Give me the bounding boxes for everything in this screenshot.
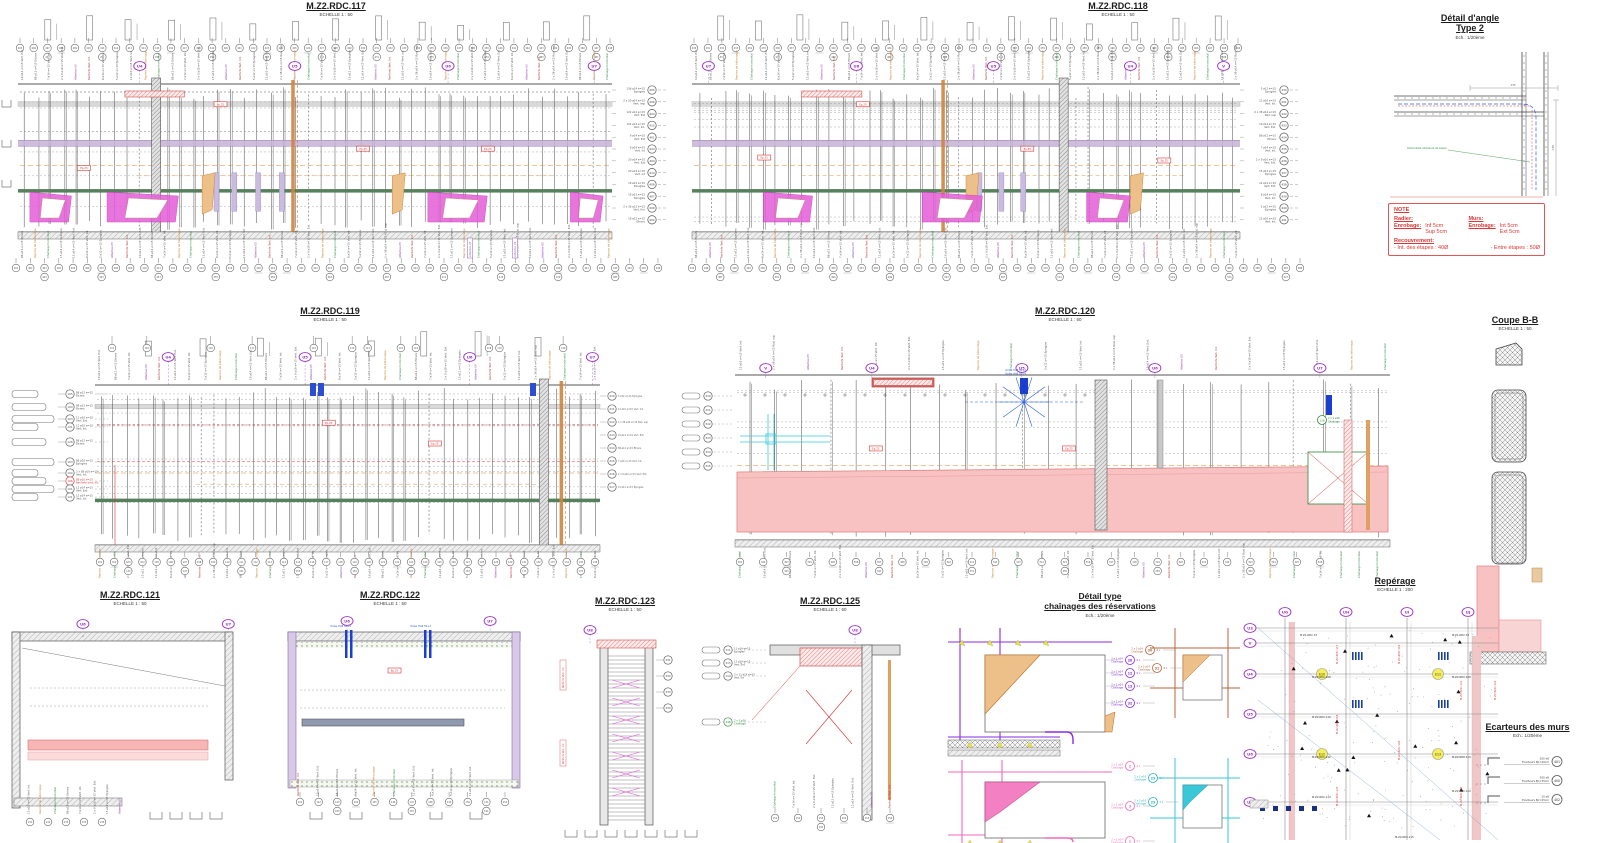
- svg-text:511: 511: [1057, 276, 1062, 279]
- svg-text:2 x 9 ø10 e=15 Vert. Ext.: 2 x 9 ø10 e=15 Vert. Ext.: [306, 224, 310, 258]
- svg-text:120: 120: [367, 561, 372, 564]
- svg-text:428: 428: [399, 267, 404, 270]
- svg-text:Reprise de bétonnage: Reprise de bétonnage: [38, 784, 42, 814]
- svg-text:105: 105: [67, 392, 73, 396]
- svg-text:U6: U6: [854, 63, 860, 68]
- svg-text:215: 215: [609, 459, 615, 463]
- svg-text:445: 445: [642, 267, 647, 270]
- svg-text:Vert. Int.: Vert. Int.: [634, 125, 645, 129]
- svg-text:U4: U4: [1247, 671, 1253, 676]
- svg-text:Chaînage horizontal: Chaînage horizontal: [46, 231, 50, 258]
- svg-text:7 ø14 e=15 Vert. Int.: 7 ø14 e=15 Vert. Int.: [127, 352, 131, 380]
- svg-text:411: 411: [100, 47, 105, 50]
- svg-text:x: x: [82, 634, 84, 638]
- svg-text:121: 121: [67, 425, 73, 429]
- svg-text:2 x 9 ø10 e=15 Vert. Ext.: 2 x 9 ø10 e=15 Vert. Ext.: [567, 224, 571, 258]
- svg-text:12 ø10 e=15 Vert. Int.: 12 ø10 e=15 Vert. Int.: [1050, 228, 1054, 258]
- svg-text:438: 438: [542, 267, 547, 270]
- svg-text:Vert. Int.: Vert. Int.: [76, 473, 87, 477]
- svg-text:U7: U7: [590, 354, 596, 359]
- svg-text:Attentes U5: Attentes U5: [972, 64, 976, 80]
- svg-text:U6: U6: [344, 618, 350, 623]
- svg-text:12 ø10 e=15 Vert. Int.: 12 ø10 e=15 Vert. Int.: [739, 340, 743, 370]
- svg-text:Chaînage horizontal: Chaînage horizontal: [1357, 551, 1361, 578]
- svg-text:191: 191: [484, 810, 489, 813]
- svg-text:401: 401: [14, 267, 19, 270]
- svg-text:107: 107: [183, 561, 188, 564]
- svg-text:28: 28: [1128, 658, 1133, 662]
- svg-text:8 ø14 e=15 Vert. Int.: 8 ø14 e=15 Vert. Int.: [346, 230, 350, 258]
- svg-text:10 ø14 e=15 Vert. Ext.: 10 ø14 e=15 Vert. Ext.: [528, 227, 532, 258]
- svg-text:Renforts Vert. Int.: Renforts Vert. Int.: [888, 784, 892, 808]
- svg-text:455: 455: [1041, 47, 1046, 50]
- svg-text:32: 32: [1128, 701, 1132, 705]
- svg-text:432: 432: [388, 47, 393, 50]
- svg-text:Vert. Ext.: Vert. Ext.: [76, 419, 88, 423]
- svg-text:2 x 9 ø10 e=15 Vert. Ext.: 2 x 9 ø10 e=15 Vert. Ext.: [593, 346, 597, 380]
- scale-reperage: ECHELLE 1 : 200: [1345, 587, 1445, 592]
- svg-text:106: 106: [67, 479, 73, 483]
- svg-text:Renforts Vert. Int.: Renforts Vert. Int.: [562, 667, 565, 688]
- svg-text:104: 104: [67, 405, 73, 409]
- svg-text:487: 487: [1284, 267, 1289, 270]
- svg-text:414: 414: [141, 47, 146, 50]
- svg-text:404: 404: [649, 112, 655, 116]
- svg-text:Renforts Vert. Int.: Renforts Vert. Int.: [388, 56, 392, 80]
- svg-text:142: 142: [316, 801, 321, 804]
- svg-text:426: 426: [370, 267, 375, 270]
- svg-text:432: 432: [456, 267, 461, 270]
- svg-text:Chaînage horizontal: Chaînage horizontal: [188, 231, 192, 258]
- svg-text:471: 471: [375, 56, 380, 59]
- svg-text:430: 430: [1281, 88, 1287, 92]
- svg-text:Ep.25: Ep.25: [391, 669, 399, 673]
- svg-text:452: 452: [789, 267, 794, 270]
- svg-text:305: 305: [831, 561, 836, 564]
- svg-text:x: x: [228, 634, 230, 638]
- svg-text:418: 418: [256, 267, 261, 270]
- svg-text:151: 151: [773, 817, 778, 820]
- svg-text:Attentes U5: Attentes U5: [1142, 242, 1146, 258]
- svg-text:407: 407: [99, 267, 104, 270]
- svg-text:448: 448: [732, 267, 737, 270]
- svg-text:Epingles: Epingles: [634, 184, 646, 188]
- svg-text:15 ø12 e=15 Epingles: 15 ø12 e=15 Epingles: [831, 778, 835, 808]
- svg-text:12 ø10 e=15 Vert. Int.: 12 ø10 e=15 Vert. Int.: [26, 784, 30, 814]
- svg-text:7 ø14 e=15 Vert. Int.: 7 ø14 e=15 Vert. Int.: [423, 230, 427, 258]
- svg-text:Reprise de bétonnage: Reprise de bétonnage: [547, 350, 551, 380]
- svg-text:Horizontale intérieure de liai: Horizontale intérieure de liaison: [1407, 146, 1447, 150]
- svg-text:U7: U7: [487, 618, 493, 623]
- svg-text:Epingles: Epingles: [634, 196, 646, 200]
- svg-text:88 ø12 e=15 Etriers: 88 ø12 e=15 Etriers: [264, 352, 268, 380]
- svg-text:7 ø14 e=15 Vert. Int.: 7 ø14 e=15 Vert. Int.: [319, 52, 323, 80]
- svg-text:441: 441: [584, 267, 589, 270]
- svg-text:7 ø14 e=15 Vert. Int.: 7 ø14 e=15 Vert. Int.: [722, 52, 726, 80]
- svg-text:2 x 9 ø10 e=15 Vert. Ext.: 2 x 9 ø10 e=15 Vert. Ext.: [875, 46, 879, 80]
- svg-text:479: 479: [556, 276, 561, 279]
- svg-text:12 ø14 e=15 Vert. Ext.: 12 ø14 e=15 Vert. Ext.: [412, 765, 416, 796]
- svg-text:UG: UG: [1282, 609, 1288, 614]
- svg-text:M.Z2.RDC.119: M.Z2.RDC.119: [1397, 644, 1401, 664]
- svg-text:2 x 9 ø10 e=15 Vert. Ext.: 2 x 9 ø10 e=15 Vert. Ext.: [1247, 336, 1251, 370]
- svg-text:U8: U8: [852, 627, 858, 632]
- svg-text:U6: U6: [1152, 365, 1158, 370]
- svg-text:5 ø12 e=15 Epingles: 5 ø12 e=15 Epingles: [618, 395, 643, 398]
- note-murs-values: Int 5cm Ext 5cm: [1500, 223, 1520, 235]
- svg-text:473: 473: [1086, 267, 1091, 270]
- svg-text:12 ø10 e=15 Vert. Int.: 12 ø10 e=15 Vert. Int.: [942, 50, 946, 80]
- svg-text:Vert. Int.: Vert. Int.: [1265, 101, 1276, 105]
- svg-text:15 ø12 e=15 Epingles: 15 ø12 e=15 Epingles: [449, 228, 453, 258]
- svg-text:442: 442: [525, 47, 530, 50]
- svg-text:440: 440: [1281, 206, 1287, 210]
- svg-text:436: 436: [513, 267, 518, 270]
- svg-text:5 ø12 e=15 Epingles: 5 ø12 e=15 Epingles: [1169, 229, 1173, 258]
- svg-text:Ecarteurs Ep=25cm: Ecarteurs Ep=25cm: [1522, 798, 1549, 802]
- svg-text:Reprise de bétonnage: Reprise de bétonnage: [606, 228, 610, 258]
- svg-text:446: 446: [656, 267, 661, 270]
- svg-text:9 x: 9 x: [1137, 684, 1141, 688]
- svg-text:451: 451: [775, 267, 780, 270]
- svg-text:Etriers: Etriers: [76, 442, 85, 446]
- svg-text:7 ø14 e=15 Vert. Int.: 7 ø14 e=15 Vert. Int.: [429, 352, 433, 380]
- svg-text:Renforts Vert. Int.: Renforts Vert. Int.: [864, 234, 868, 258]
- svg-text:V: V: [764, 365, 767, 370]
- svg-text:5 ø12 e=15 Epingles: 5 ø12 e=15 Epingles: [906, 229, 910, 258]
- svg-text:U5: U5: [991, 63, 997, 68]
- svg-text:Ep.25: Ep.25: [431, 442, 439, 446]
- svg-text:2 x 9 ø10 e=15 Vert. Ext.: 2 x 9 ø10 e=15 Vert. Ext.: [470, 46, 474, 80]
- title-120: M.Z2.RDC.120: [990, 306, 1140, 316]
- svg-text:433: 433: [1281, 124, 1287, 128]
- svg-text:214: 214: [609, 446, 615, 450]
- svg-text:118: 118: [338, 561, 343, 564]
- svg-text:131: 131: [522, 561, 527, 564]
- svg-text:8 ø14 e=15 Vert. Int.: 8 ø14 e=15 Vert. Int.: [760, 230, 764, 258]
- svg-text:404: 404: [57, 267, 62, 270]
- svg-text:Reprise de bétonnage: Reprise de bétonnage: [735, 50, 739, 80]
- svg-text:126: 126: [451, 561, 456, 564]
- title-123: M.Z2.RDC.123: [550, 596, 700, 606]
- svg-text:2 x 9 ø10 e=15 Vert. Ext.: 2 x 9 ø10 e=15 Vert. Ext.: [1152, 46, 1156, 80]
- svg-text:M.Z2.RDC.121: M.Z2.RDC.121: [1459, 680, 1463, 700]
- svg-text:Voiles HA8 50+4: Voiles HA8 50+4: [330, 624, 351, 628]
- svg-text:Attentes U5: Attentes U5: [254, 242, 258, 258]
- svg-text:12 ø14 e=15 Vert. Ext.: 12 ø14 e=15 Vert. Ext.: [173, 349, 177, 380]
- chainages-scale: Ech.: 1/20ème: [1000, 613, 1200, 618]
- svg-text:Chaînage horizontal: Chaînage horizontal: [53, 787, 57, 814]
- note-radier-col: Radier: Enrobage: Inf 5cm Sup 5cm: [1394, 216, 1466, 235]
- svg-text:333: 333: [665, 690, 671, 694]
- svg-text:12 ø10 e=15 Vert. Int.: 12 ø10 e=15 Vert. Int.: [242, 228, 246, 258]
- svg-text:216: 216: [609, 472, 615, 476]
- svg-text:Attentes U5: Attentes U5: [869, 792, 873, 808]
- svg-text:454: 454: [817, 267, 822, 270]
- scale-119: ECHELLE 1 : 50: [255, 317, 405, 322]
- svg-text:88 ø12 e=15 Etriers: 88 ø12 e=15 Etriers: [33, 52, 37, 80]
- svg-text:118: 118: [487, 347, 492, 350]
- svg-text:Vert. Ext.: Vert. Ext.: [1264, 160, 1276, 164]
- svg-text:437: 437: [789, 47, 794, 50]
- svg-text:105: 105: [154, 561, 159, 564]
- svg-text:5 ø12 e=15 Epingles: 5 ø12 e=15 Epingles: [115, 51, 119, 80]
- svg-text:2 x 2 ø16: 2 x 2 ø16: [1328, 416, 1340, 420]
- svg-text:414: 414: [649, 171, 655, 175]
- svg-text:9 x: 9 x: [1137, 839, 1141, 843]
- svg-text:Vert. Ext.: Vert. Ext.: [1264, 125, 1276, 129]
- svg-text:U3: U3: [1247, 625, 1253, 630]
- svg-text:322: 322: [1225, 561, 1230, 564]
- svg-text:144: 144: [354, 801, 359, 804]
- svg-text:479: 479: [1171, 267, 1176, 270]
- svg-text:7 ø14 e=15 Vert. Int.: 7 ø14 e=15 Vert. Int.: [46, 52, 50, 80]
- svg-text:Reprise de bétonnage: Reprise de bétonnage: [1208, 228, 1212, 258]
- scale-123: ECHELLE 1 : 50: [550, 607, 700, 612]
- svg-text:436: 436: [1281, 159, 1287, 163]
- svg-text:441: 441: [1281, 218, 1287, 222]
- svg-text:416: 416: [169, 47, 174, 50]
- svg-text:5 ø12 e=15 Epingles: 5 ø12 e=15 Epingles: [98, 229, 102, 258]
- svg-text:Renforts Vert. Int.: Renforts Vert. Int.: [840, 346, 844, 370]
- svg-text:311: 311: [725, 648, 731, 652]
- svg-text:Attentes U5: Attentes U5: [398, 242, 402, 258]
- svg-text:155: 155: [865, 817, 870, 820]
- svg-text:M.Z2.RDC.123: M.Z2.RDC.123: [1335, 786, 1339, 806]
- svg-text:10 ø14 e=15 Vert. Ext.: 10 ø14 e=15 Vert. Ext.: [1110, 49, 1114, 80]
- svg-text:123: 123: [409, 561, 414, 564]
- svg-text:431: 431: [442, 267, 447, 270]
- svg-text:Reprise de bétonnage: Reprise de bétonnage: [1063, 228, 1067, 258]
- svg-text:309: 309: [923, 561, 928, 564]
- svg-text:5 ø12 e=15 Epingles: 5 ø12 e=15 Epingles: [940, 549, 944, 578]
- svg-text:Attentes U5: Attentes U5: [525, 64, 529, 80]
- svg-text:M.Z2.RDC.114: M.Z2.RDC.114: [1312, 795, 1331, 799]
- svg-text:467: 467: [385, 276, 390, 279]
- svg-text:311: 311: [970, 561, 975, 564]
- svg-text:U4: U4: [1128, 63, 1134, 68]
- svg-text:5 ø12 e=15 Epingles: 5 ø12 e=15 Epingles: [791, 51, 795, 80]
- note-radier-values: Inf 5cm Sup 5cm: [1425, 223, 1447, 235]
- svg-text:9 x: 9 x: [1137, 764, 1141, 768]
- svg-text:Vert. Hor: Vert. Hor: [633, 208, 645, 212]
- svg-text:8 ø14 e=15 Vert. Int.: 8 ø14 e=15 Vert. Int.: [777, 52, 781, 80]
- svg-text:116: 116: [145, 347, 150, 350]
- svg-text:462: 462: [930, 267, 935, 270]
- svg-text:112: 112: [312, 347, 317, 350]
- svg-text:2 x 9 ø10 e=15 Vert. Ext.: 2 x 9 ø10 e=15 Vert. Ext.: [907, 336, 911, 370]
- svg-text:15 ø12 e=15 Epingles: 15 ø12 e=15 Epingles: [1282, 340, 1286, 370]
- svg-text:Ep.25: Ep.25: [80, 166, 88, 170]
- svg-text:115: 115: [350, 347, 355, 350]
- svg-text:311: 311: [705, 408, 711, 412]
- svg-text:Attentes U5: Attentes U5: [806, 354, 810, 370]
- svg-text:10 ø14 e=15 Vert. Ext.: 10 ø14 e=15 Vert. Ext.: [20, 49, 24, 80]
- svg-text:2 x 9 ø10 e=15 Vert. Ext.: 2 x 9 ø10 e=15 Vert. Ext.: [437, 224, 441, 258]
- svg-text:Etriers: Etriers: [637, 219, 646, 223]
- svg-text:476: 476: [1128, 267, 1133, 270]
- svg-text:460: 460: [902, 267, 907, 270]
- svg-text:Chaînage: Chaînage: [1134, 778, 1146, 782]
- svg-text:482: 482: [1213, 267, 1218, 270]
- svg-text:Vert. Int.: Vert. Int.: [1265, 219, 1276, 223]
- title-coupe: Coupe B-B: [1455, 315, 1575, 325]
- svg-text:103: 103: [126, 561, 131, 564]
- svg-text:134: 134: [565, 561, 570, 564]
- svg-text:477: 477: [1142, 267, 1147, 270]
- svg-text:217: 217: [609, 485, 615, 489]
- svg-text:454: 454: [1027, 47, 1032, 50]
- svg-text:Ep.25: Ep.25: [1065, 447, 1073, 451]
- svg-text:Renforts Vert. Int.: Renforts Vert. Int.: [1137, 56, 1141, 80]
- svg-text:420: 420: [224, 47, 229, 50]
- svg-text:Reprise de bétonnage: Reprise de bétonnage: [1040, 50, 1044, 80]
- svg-text:Chaînage horizontal: Chaînage horizontal: [772, 781, 776, 808]
- svg-text:V: V: [1249, 640, 1252, 645]
- svg-text:Chaînage horizontal: Chaînage horizontal: [333, 231, 337, 258]
- svg-text:15 ø12 e=15 Epingles: 15 ø12 e=15 Epingles: [457, 350, 461, 380]
- svg-text:527: 527: [1284, 276, 1289, 279]
- svg-text:320: 320: [1179, 561, 1184, 564]
- svg-text:457: 457: [859, 267, 864, 270]
- svg-text:114: 114: [282, 561, 287, 564]
- svg-text:507: 507: [1001, 276, 1006, 279]
- svg-text:5 ø12 e=15 Epingles: 5 ø12 e=15 Epingles: [358, 229, 362, 258]
- svg-text:88 ø12 e=15 Etriers: 88 ø12 e=15 Etriers: [578, 52, 582, 80]
- svg-text:Attentes U5: Attentes U5: [110, 242, 114, 258]
- svg-text:467: 467: [1208, 47, 1213, 50]
- scale-122: ECHELLE 1 : 50: [315, 601, 465, 606]
- svg-text:310: 310: [705, 394, 711, 398]
- svg-text:M.Z2.RDC.112: M.Z2.RDC.112: [1312, 755, 1331, 759]
- svg-text:10 ø14 e=15 Vert. Ext.: 10 ø14 e=15 Vert. Ext.: [428, 49, 432, 80]
- svg-text:483: 483: [613, 276, 618, 279]
- panel-title-123: M.Z2.RDC.123 ECHELLE 1 : 50: [550, 596, 700, 613]
- svg-text:464: 464: [958, 267, 963, 270]
- svg-text:312: 312: [993, 561, 998, 564]
- svg-text:Chaînage: Chaînage: [1111, 806, 1123, 810]
- svg-text:402: 402: [1554, 798, 1560, 802]
- svg-text:Chaînage: Chaînage: [1131, 650, 1143, 654]
- svg-text:109: 109: [211, 561, 216, 564]
- svg-text:7 ø14 e=15 Vert. Int.: 7 ø14 e=15 Vert. Int.: [294, 230, 298, 258]
- svg-text:412: 412: [114, 47, 119, 50]
- svg-text:441: 441: [845, 47, 850, 50]
- svg-text:461: 461: [1124, 47, 1129, 50]
- svg-text:132: 132: [46, 821, 51, 824]
- svg-text:U6: U6: [80, 621, 86, 626]
- note-enrobage-label: Enrobage:: [1394, 223, 1421, 235]
- svg-text:439: 439: [484, 47, 489, 50]
- svg-text:U4: U4: [137, 63, 143, 68]
- svg-text:Chaînage horizontal: Chaînage horizontal: [306, 53, 310, 80]
- svg-text:Renforts Vert. Int.: Renforts Vert. Int.: [1155, 234, 1159, 258]
- svg-text:403: 403: [649, 159, 655, 163]
- svg-text:459: 459: [888, 267, 893, 270]
- note-murs-enrobage-label: Enrobage:: [1468, 223, 1495, 235]
- svg-text:149: 149: [447, 801, 452, 804]
- svg-text:Renforts Vert. Int.: Renforts Vert. Int.: [554, 234, 558, 258]
- svg-text:424: 424: [342, 267, 347, 270]
- svg-text:425: 425: [356, 267, 361, 270]
- svg-text:7 ø14 e=15 Vert. Int.: 7 ø14 e=15 Vert. Int.: [579, 352, 583, 380]
- svg-text:324: 324: [1271, 561, 1276, 564]
- svg-text:E13: E13: [1435, 752, 1441, 756]
- svg-text:145: 145: [372, 801, 377, 804]
- svg-text:447: 447: [594, 47, 599, 50]
- svg-text:10 ø14 e=15 Vert. Ext.: 10 ø14 e=15 Vert. Ext.: [564, 49, 568, 80]
- svg-text:455: 455: [831, 267, 836, 270]
- svg-text:444: 444: [887, 47, 892, 50]
- svg-text:438: 438: [1281, 183, 1287, 187]
- svg-text:Chaînage horizontal: Chaînage horizontal: [1206, 53, 1210, 80]
- svg-text:468: 468: [1222, 47, 1227, 50]
- svg-text:Renforts Vert. Int.: Renforts Vert. Int.: [87, 56, 91, 80]
- svg-text:2 x 9 ø10 e=15 Vert. Ext.: 2 x 9 ø10 e=15 Vert. Ext.: [92, 780, 96, 814]
- svg-text:433: 433: [734, 47, 739, 50]
- svg-text:12 ø14 e=15 Vert. Ext.: 12 ø14 e=15 Vert. Ext.: [497, 49, 501, 80]
- svg-text:Renforts Vert. Int.: Renforts Vert. Int.: [832, 56, 836, 80]
- svg-text:437: 437: [527, 267, 532, 270]
- svg-text:Epingles: Epingles: [1265, 172, 1277, 176]
- svg-text:10 ø14 e=15 Vert. Ext.: 10 ø14 e=15 Vert. Ext.: [1145, 339, 1149, 370]
- svg-text:410: 410: [142, 267, 147, 270]
- svg-text:3: 3: [1129, 804, 1131, 808]
- svg-text:10 ø14 e=15 Vert. Ext.: 10 ø14 e=15 Vert. Ext.: [812, 227, 816, 258]
- svg-text:12 ø10 e=15 Vert. Int.: 12 ø10 e=15 Vert. Int.: [965, 548, 969, 578]
- svg-text:434: 434: [485, 267, 490, 270]
- svg-text:462: 462: [1138, 47, 1143, 50]
- svg-text:Vert. Int: Vert. Int: [635, 149, 645, 153]
- svg-text:445: 445: [901, 47, 906, 50]
- svg-text:1: 1: [1129, 839, 1131, 843]
- svg-text:15 ø12 e=15 Epingles: 15 ø12 e=15 Epingles: [59, 228, 63, 258]
- svg-text:304: 304: [807, 561, 812, 564]
- svg-text:UJ: UJ: [1466, 609, 1471, 614]
- svg-text:2 x 38 ø14 e=15 Rad. sup: 2 x 38 ø14 e=15 Rad. sup: [799, 223, 803, 258]
- scale-117: ECHELLE 1 : 50: [261, 12, 411, 17]
- svg-text:Attentes U5: Attentes U5: [74, 64, 78, 80]
- svg-text:Epingles: Epingles: [76, 462, 88, 466]
- svg-text:Reprise de bétonnage: Reprise de bétonnage: [918, 228, 922, 258]
- svg-text:416: 416: [228, 267, 233, 270]
- svg-text:8 ø14 e=15 Vert. Int.: 8 ø14 e=15 Vert. Int.: [101, 52, 105, 80]
- svg-text:2 x 38 ø14 e=15 Rad. sup: 2 x 38 ø14 e=15 Rad. sup: [1242, 543, 1246, 578]
- title-reperage: Repérage: [1345, 576, 1445, 586]
- svg-text:125: 125: [437, 561, 442, 564]
- svg-text:2 x 9 ø10 e=15 Vert. Ext.: 2 x 9 ø10 e=15 Vert. Ext.: [838, 544, 842, 578]
- svg-text:410: 410: [86, 47, 91, 50]
- note-murs-label: Murs:: [1468, 216, 1540, 222]
- svg-text:406: 406: [32, 47, 37, 50]
- svg-text:483: 483: [1227, 267, 1232, 270]
- svg-text:113: 113: [497, 347, 502, 350]
- svg-text:88 ø12 e=15 Etriers: 88 ø12 e=15 Etriers: [957, 230, 961, 258]
- svg-text:Attentes U5: Attentes U5: [224, 64, 228, 80]
- svg-text:Vert. Int.: Vert. Int.: [1265, 149, 1276, 153]
- svg-text:7 ø14 e=15 Vert. Int.: 7 ø14 e=15 Vert. Int.: [278, 352, 282, 380]
- svg-text:459: 459: [271, 276, 276, 279]
- svg-text:407: 407: [649, 194, 655, 198]
- svg-text:8 ø14 e=15 Vert. Int.: 8 ø14 e=15 Vert. Int.: [430, 768, 434, 796]
- svg-text:488: 488: [1298, 267, 1303, 270]
- svg-text:Voiles HA8 50+4: Voiles HA8 50+4: [1005, 372, 1026, 376]
- svg-text:12 ø10 e=15 Vert. Int.: 12 ø10 e=15 Vert. Int.: [517, 350, 521, 380]
- svg-text:2 x 38 ø14 e=15 Rad. sup: 2 x 38 ø14 e=15 Rad. sup: [1194, 223, 1198, 258]
- svg-text:Ep.25: Ep.25: [325, 421, 333, 425]
- svg-text:7 ø14 e=15 Vert. Int.: 7 ø14 e=15 Vert. Int.: [78, 786, 82, 814]
- svg-text:429: 429: [347, 47, 352, 50]
